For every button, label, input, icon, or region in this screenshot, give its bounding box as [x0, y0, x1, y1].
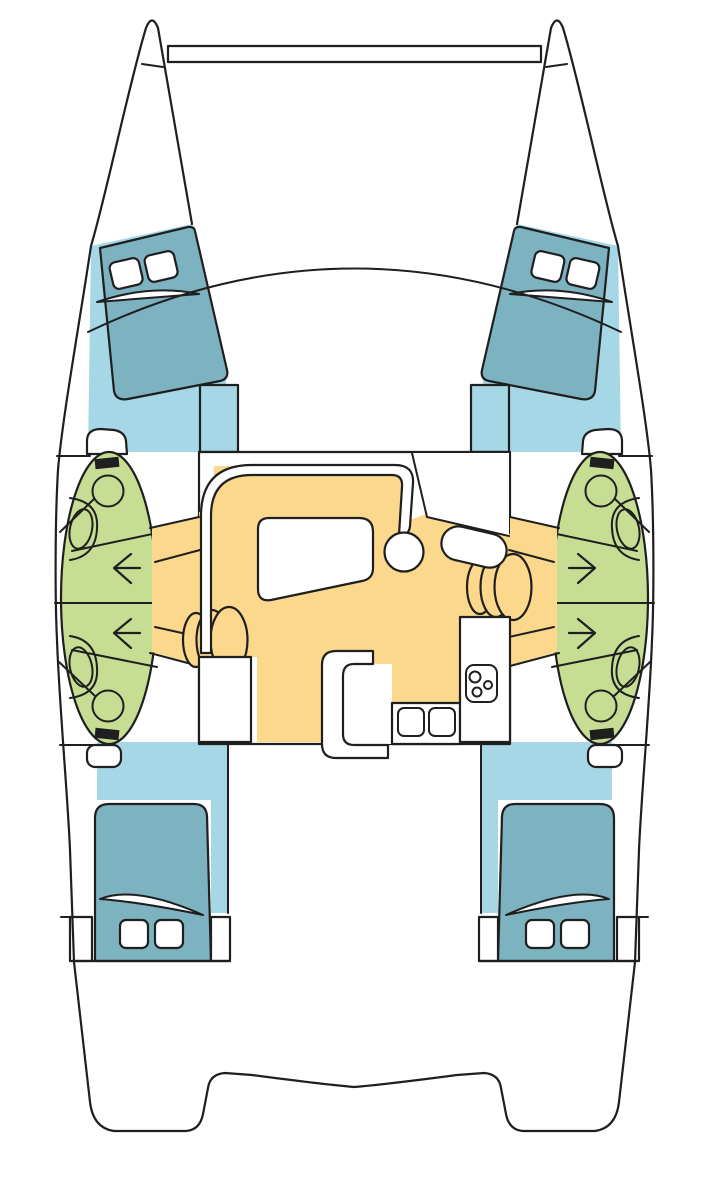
- starboard-forward-cabin: [471, 28, 621, 452]
- catamaran-floor-plan: [0, 0, 709, 1181]
- galley-sink: [398, 708, 424, 736]
- floor-plan-svg: [0, 0, 709, 1181]
- settee-end-seat: [385, 533, 424, 572]
- forward-crossbeam: [168, 46, 541, 62]
- port-aft-cabin: [70, 742, 230, 961]
- starboard-heads: [552, 429, 654, 744]
- island-counter-floor: [343, 664, 392, 744]
- salon-galley: [150, 452, 559, 758]
- galley-sink: [429, 708, 455, 736]
- starboard-aft-cabin: [479, 742, 639, 961]
- port-forward-cabin: [88, 28, 238, 452]
- storage-unit: [199, 657, 251, 742]
- port-heads: [55, 429, 157, 744]
